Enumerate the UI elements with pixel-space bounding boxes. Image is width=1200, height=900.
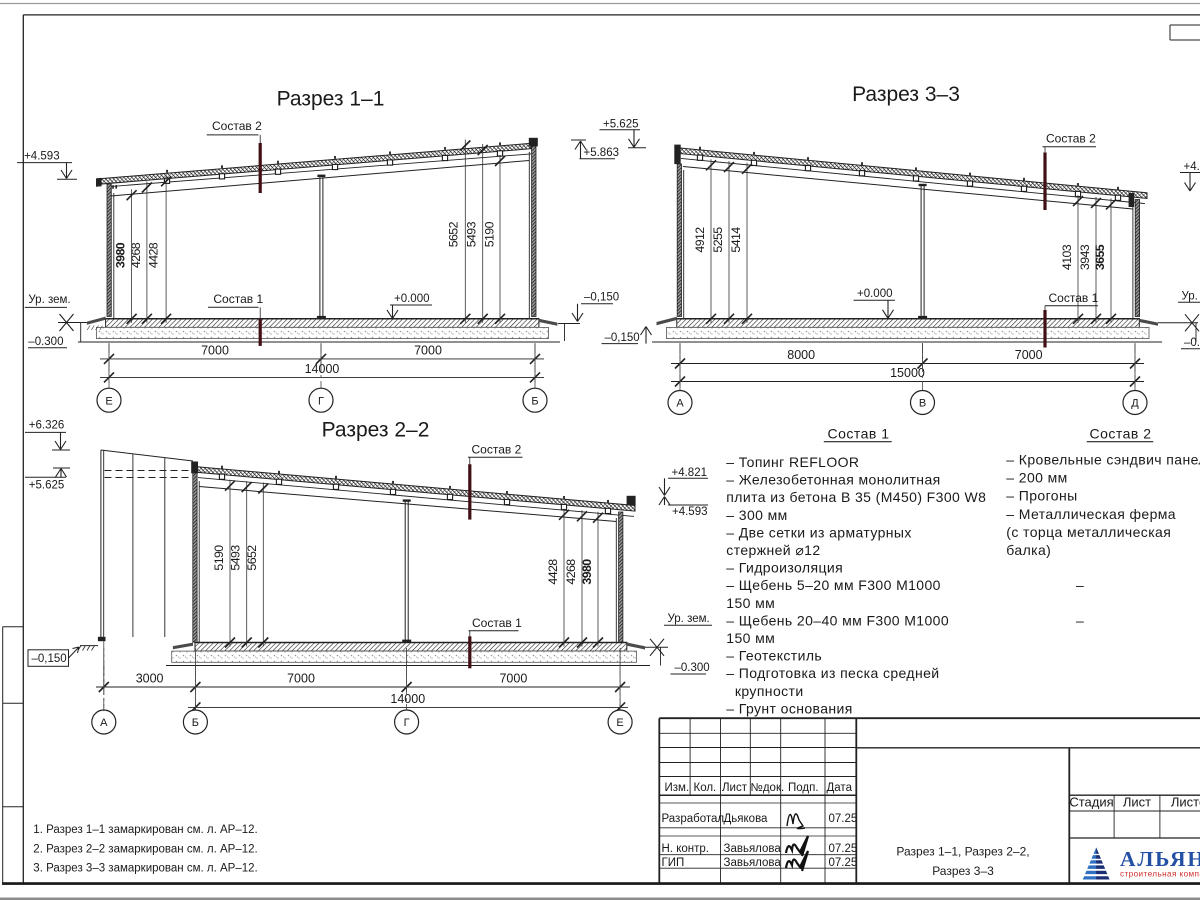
svg-text:3. Разрез 3–3 замаркирован см.: 3. Разрез 3–3 замаркирован см. л. АР–12. [33,863,257,875]
svg-text:Разрез 2–2: Разрез 2–2 [322,419,430,442]
svg-text:7000: 7000 [201,343,229,357]
svg-text:4428: 4428 [546,559,560,585]
svg-text:+5.625: +5.625 [29,480,65,492]
svg-text:07.25: 07.25 [829,857,858,869]
svg-text:4912: 4912 [693,227,707,253]
svg-text:07.25: 07.25 [829,843,858,855]
svg-text:7000: 7000 [414,343,442,357]
svg-text:Разработал: Разработал [662,813,725,825]
svg-text:АЛЬЯНС: АЛЬЯНС [1120,847,1200,871]
svg-text:+0.000: +0.000 [857,288,893,300]
svg-text:крупности: крупности [726,683,803,699]
svg-text:Д: Д [1131,398,1139,410]
svg-text:2. Разрез 2–2 замаркирован см.: 2. Разрез 2–2 замаркирован см. л. АР–12. [33,843,257,855]
svg-text:Листов: Листов [1171,795,1200,810]
svg-text:–: – [1076,577,1084,593]
svg-text:+5.863: +5.863 [584,147,620,159]
svg-text:+4.593: +4.593 [24,151,60,163]
svg-text:5493: 5493 [229,545,243,571]
svg-text:Е: Е [616,717,623,729]
svg-text:150 мм: 150 мм [726,630,775,646]
svg-text:Состав 1: Состав 1 [472,616,522,630]
svg-text:стержней ⌀12: стержней ⌀12 [726,542,820,558]
svg-text:7000: 7000 [287,672,315,686]
svg-text:3980: 3980 [113,242,127,268]
svg-text:Разрез 3–3: Разрез 3–3 [852,83,960,106]
svg-text:5652: 5652 [446,221,460,247]
svg-text:– Металлическая ферма: – Металлическая ферма [1006,506,1176,522]
svg-text:1. Разрез 1–1 замаркирован см.: 1. Разрез 1–1 замаркирован см. л. АР–12. [33,824,257,836]
svg-text:– Геотекстиль: – Геотекстиль [726,648,822,664]
svg-text:+0.000: +0.000 [394,293,430,305]
svg-text:Е: Е [105,395,112,407]
svg-text:Дата: Дата [827,782,853,794]
svg-text:балка): балка) [1006,542,1051,558]
svg-text:4103: 4103 [1060,244,1074,270]
svg-text:Завьялова: Завьялова [724,843,782,855]
svg-text:– 300 мм: – 300 мм [726,507,787,523]
svg-text:Н. контр.: Н. контр. [662,843,709,855]
svg-text:Стадия: Стадия [1069,795,1113,810]
svg-text:Состав 2: Состав 2 [472,443,522,457]
svg-text:Дьякова: Дьякова [724,813,769,825]
svg-text:–0.300: –0.300 [675,662,710,674]
svg-text:Кол.: Кол. [694,782,717,794]
svg-text:–0,150: –0,150 [584,292,619,304]
svg-text:4268: 4268 [129,242,143,268]
svg-text:14000: 14000 [305,362,340,376]
svg-text:–0,150: –0,150 [605,332,640,344]
svg-text:строительная компания: строительная компания [1120,870,1200,879]
svg-text:Состав 2: Состав 2 [1089,425,1151,441]
svg-text:Состав 1: Состав 1 [213,292,263,306]
svg-text:№док.: №док. [751,782,785,794]
svg-text:07.25: 07.25 [829,813,858,825]
svg-text:+4.21: +4.21 [1184,161,1200,173]
svg-text:А: А [100,717,108,729]
svg-text:– Две сетки из арматурных: – Две сетки из арматурных [726,524,911,540]
svg-text:14000: 14000 [390,692,425,706]
svg-text:3943: 3943 [1078,244,1092,270]
svg-text:5255: 5255 [711,227,725,253]
svg-text:5190: 5190 [482,221,496,247]
svg-text:–0.300: –0.300 [28,336,63,348]
svg-text:5190: 5190 [212,545,226,571]
svg-text:4268: 4268 [564,559,578,585]
svg-text:7000: 7000 [499,672,527,686]
svg-text:Состав 2: Состав 2 [1046,132,1096,146]
svg-text:5414: 5414 [729,227,743,253]
svg-text:– Подготовка из песка средней: – Подготовка из песка средней [726,665,939,681]
svg-text:3980: 3980 [580,559,594,585]
svg-text:Подп.: Подп. [788,782,819,794]
svg-text:8000: 8000 [787,348,815,362]
svg-text:– Гидроизоляция: – Гидроизоляция [726,560,843,576]
svg-text:7000: 7000 [1015,348,1043,362]
svg-text:–0,150: –0,150 [32,653,67,665]
svg-text:+5.625: +5.625 [603,118,639,130]
svg-text:Завьялова: Завьялова [724,857,782,869]
svg-text:Изм.: Изм. [665,782,690,794]
svg-text:3655: 3655 [1093,244,1107,270]
svg-text:+4.821: +4.821 [672,467,708,479]
svg-text:–: – [1076,612,1084,628]
svg-text:Ур. зем.: Ур. зем. [28,294,70,306]
svg-text:В: В [919,398,926,410]
svg-text:– Щебень 20–40 мм F300 М1000: – Щебень 20–40 мм F300 М1000 [726,612,949,628]
svg-text:– Щебень 5–20 мм F300 М1000: – Щебень 5–20 мм F300 М1000 [726,577,941,593]
svg-text:А: А [676,398,684,410]
svg-text:Состав 1: Состав 1 [1049,291,1099,305]
svg-text:– Прогоны: – Прогоны [1006,488,1077,504]
svg-text:– Железобетонная монолитная: – Железобетонная монолитная [726,472,940,488]
svg-text:– 200 мм: – 200 мм [1006,470,1067,486]
svg-text:Б: Б [192,717,199,729]
svg-text:Разрез 3–3: Разрез 3–3 [932,864,994,878]
svg-text:Состав 1: Состав 1 [827,425,889,441]
svg-text:Ур. з: Ур. з [1182,291,1200,303]
svg-text:150 мм: 150 мм [726,595,775,611]
svg-text:Лист: Лист [722,782,748,794]
svg-text:5493: 5493 [465,221,479,247]
svg-text:+4.593: +4.593 [672,506,708,518]
svg-text:Разрез 1–1, Разрез 2–2,: Разрез 1–1, Разрез 2–2, [896,845,1029,859]
svg-text:– Кровельные сэндвич панели: – Кровельные сэндвич панели [1006,452,1200,468]
svg-text:– Топинг REFLOOR: – Топинг REFLOOR [726,454,859,470]
svg-text:Состав 2: Состав 2 [212,119,262,133]
svg-text:–0.3: –0.3 [1184,337,1200,349]
svg-text:Разрез 1–1: Разрез 1–1 [277,87,385,110]
svg-text:15000: 15000 [890,366,925,380]
svg-text:ГИП: ГИП [662,857,685,869]
svg-text:Ур. зем.: Ур. зем. [668,613,710,625]
svg-text:Г: Г [318,395,324,407]
svg-text:+6.326: +6.326 [29,420,65,432]
svg-text:плита из бетона В 35 (М450) F3: плита из бетона В 35 (М450) F300 W8 [726,489,986,505]
svg-text:– Грунт основания: – Грунт основания [726,700,852,716]
svg-text:4428: 4428 [147,242,161,268]
svg-text:(с торца металлическая: (с торца металлическая [1006,524,1171,540]
svg-text:5652: 5652 [245,545,259,571]
svg-text:3000: 3000 [136,672,164,686]
svg-text:Лист: Лист [1123,795,1151,810]
svg-text:Г: Г [404,717,410,729]
svg-text:Б: Б [531,395,538,407]
